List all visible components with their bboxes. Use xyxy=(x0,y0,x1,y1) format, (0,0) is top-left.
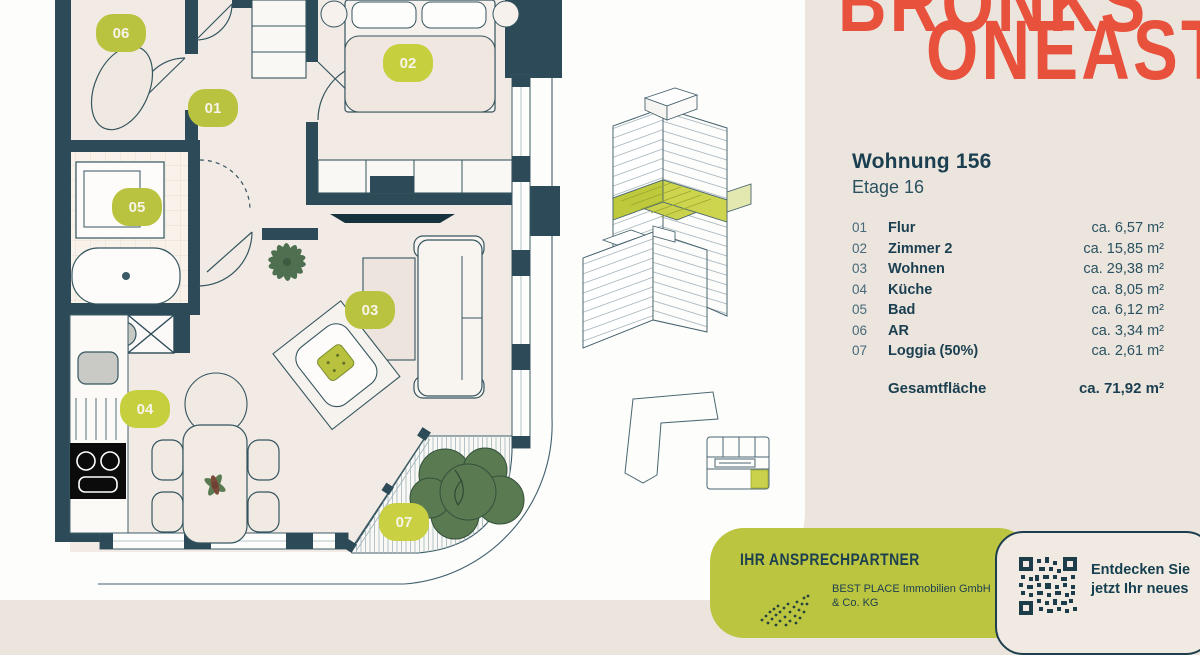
building-illustration xyxy=(575,80,770,370)
svg-text:04: 04 xyxy=(137,401,154,418)
contact-heading: IHR ANSPRECHPARTNER xyxy=(740,550,920,570)
apartment-floor-label: Etage 16 xyxy=(852,177,1164,198)
tv-panel xyxy=(330,214,455,223)
room-label-02: 02 xyxy=(383,44,433,82)
keyplan-unit-highlight xyxy=(751,470,768,488)
svg-text:07: 07 xyxy=(396,514,413,531)
contact-company: BEST PLACE Immobilien GmbH & Co. KG xyxy=(832,582,991,610)
best-place-dots-logo xyxy=(752,576,814,635)
room-row: 01Flurca. 6,57 m² xyxy=(852,218,1164,239)
floor-key-plan xyxy=(615,385,770,505)
logo-line-2: ONEAST xyxy=(926,2,1200,99)
bedroom-sideboard xyxy=(318,160,512,193)
svg-text:05: 05 xyxy=(129,199,146,216)
qr-card: Entdecken Sie jetzt Ihr neues xyxy=(995,531,1200,655)
room-list: 01Flurca. 6,57 m² 02Zimmer 2ca. 15,85 m²… xyxy=(852,218,1164,362)
svg-text:02: 02 xyxy=(400,55,417,72)
room-row: 04Kücheca. 8,05 m² xyxy=(852,280,1164,301)
room-label-04: 04 xyxy=(120,390,170,428)
keyplan-outline xyxy=(625,392,718,483)
total-area-row: Gesamtfläche ca. 71,92 m² xyxy=(852,380,1164,397)
kitchen-counter xyxy=(70,315,128,533)
room-label-07: 07 xyxy=(379,503,429,541)
nightstand xyxy=(321,1,347,27)
room-label-05: 05 xyxy=(112,188,162,226)
room-row: 06ARca. 3,34 m² xyxy=(852,321,1164,342)
room-row: 02Zimmer 2ca. 15,85 m² xyxy=(852,239,1164,260)
contact-card: IHR ANSPRECHPARTNER BEST PLACE Immobilie… xyxy=(710,528,1032,638)
kitchen-sink xyxy=(78,352,118,384)
hall-wardrobe xyxy=(252,0,306,78)
room-row: 07Loggia (50%)ca. 2,61 m² xyxy=(852,341,1164,362)
room-row: 05Badca. 6,12 m² xyxy=(852,300,1164,321)
sofa xyxy=(414,236,484,398)
svg-text:06: 06 xyxy=(113,25,130,42)
room-row: 03Wohnenca. 29,38 m² xyxy=(852,259,1164,280)
stove xyxy=(70,443,126,499)
bathtub xyxy=(72,248,180,304)
room-label-03: 03 xyxy=(345,291,395,329)
apartment-title: Wohnung 156 xyxy=(852,150,1164,174)
floorplan-sheet: { "logo": { "line1": "BRONKS", "line2": … xyxy=(0,0,1200,600)
apartment-info: Wohnung 156 Etage 16 01Flurca. 6,57 m² 0… xyxy=(852,150,1164,397)
room-label-06: 06 xyxy=(96,14,146,52)
qr-cta-text: Entdecken Sie jetzt Ihr neues xyxy=(1091,561,1190,599)
nightstand xyxy=(493,1,519,27)
room-label-01: 01 xyxy=(188,89,238,127)
podium-building xyxy=(583,226,707,348)
svg-text:03: 03 xyxy=(362,302,379,319)
qr-code-icon xyxy=(1019,557,1077,620)
window-band-right xyxy=(512,75,530,448)
highlighted-annex xyxy=(727,184,751,212)
svg-text:01: 01 xyxy=(205,100,222,117)
